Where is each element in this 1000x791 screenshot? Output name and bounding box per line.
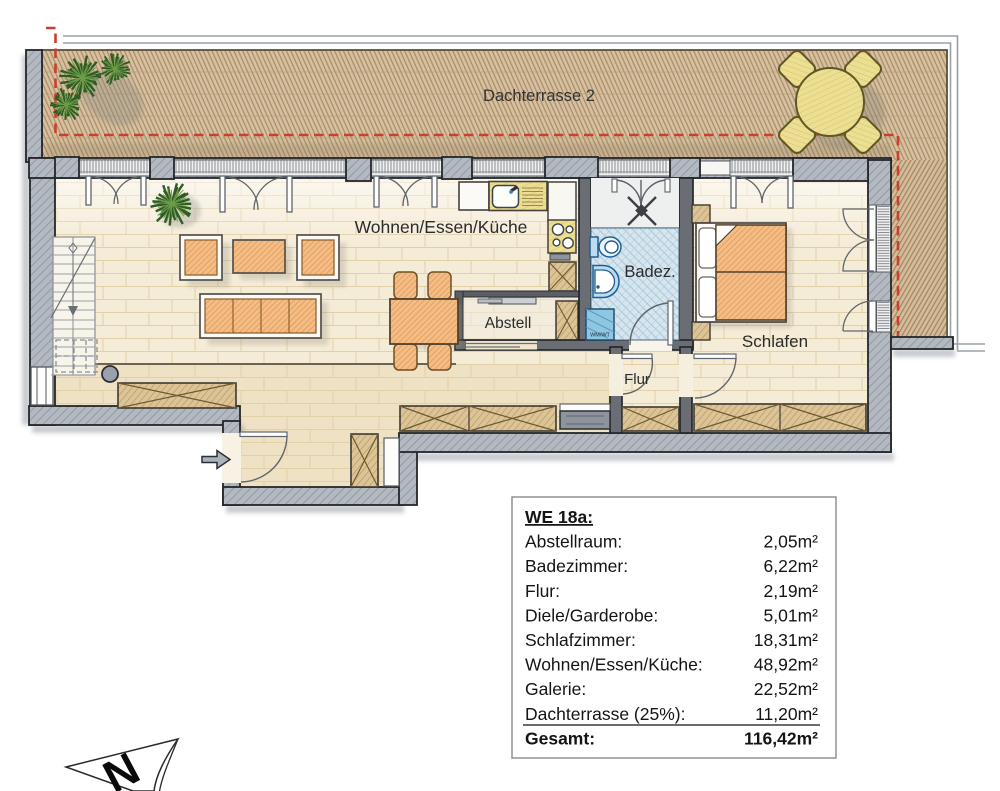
svg-text:5,01m²: 5,01m² <box>764 605 819 625</box>
svg-text:2,05m²: 2,05m² <box>764 532 819 552</box>
svg-text:2,19m²: 2,19m² <box>764 581 819 601</box>
svg-text:Flur:: Flur: <box>525 581 560 601</box>
svg-text:Schlafen: Schlafen <box>742 332 808 351</box>
svg-text:Dachterrasse (25%):: Dachterrasse (25%): <box>525 704 685 724</box>
svg-text:18,31m²: 18,31m² <box>754 630 818 650</box>
svg-text:Schlafzimmer:: Schlafzimmer: <box>525 630 636 650</box>
svg-text:Gesamt:: Gesamt: <box>525 728 595 748</box>
svg-text:Wohnen/Essen/Küche:: Wohnen/Essen/Küche: <box>525 655 703 675</box>
svg-text:Wohnen/Essen/Küche: Wohnen/Essen/Küche <box>355 217 528 237</box>
svg-text:Badez.: Badez. <box>624 263 675 281</box>
svg-text:Flur: Flur <box>624 371 650 388</box>
svg-text:Abstell: Abstell <box>485 315 532 332</box>
svg-text:6,22m²: 6,22m² <box>764 556 819 576</box>
svg-text:Diele/Garderobe:: Diele/Garderobe: <box>525 605 658 625</box>
svg-text:48,92m²: 48,92m² <box>754 655 818 675</box>
svg-text:22,52m²: 22,52m² <box>754 679 818 699</box>
svg-text:Badezimmer:: Badezimmer: <box>525 556 628 576</box>
svg-text:WM/WT: WM/WT <box>590 333 610 339</box>
svg-text:Abstellraum:: Abstellraum: <box>525 532 622 552</box>
svg-text:11,20m²: 11,20m² <box>755 704 818 724</box>
svg-text:116,42m²: 116,42m² <box>744 728 818 748</box>
svg-text:WE 18a:: WE 18a: <box>525 507 593 527</box>
svg-text:Dachterrasse 2: Dachterrasse 2 <box>483 87 595 105</box>
svg-text:Galerie:: Galerie: <box>525 679 586 699</box>
